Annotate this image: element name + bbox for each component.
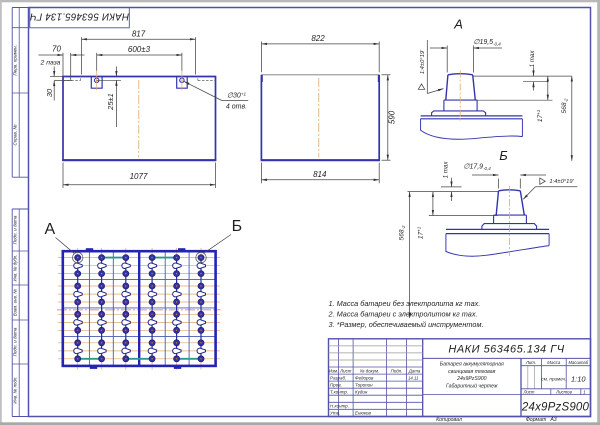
svg-text:1 max: 1 max — [529, 50, 536, 68]
svg-text:590: 590 — [388, 110, 397, 124]
svg-text:Подп. и дата: Подп. и дата — [13, 327, 18, 356]
svg-text:14.11: 14.11 — [408, 375, 419, 380]
svg-text:25±1: 25±1 — [106, 93, 115, 111]
svg-text:НАКИ 563465.134 ГЧ: НАКИ 563465.134 ГЧ — [30, 11, 129, 22]
svg-text:Перв. примен.: Перв. примен. — [13, 45, 18, 76]
svg-text:Т.контр.: Т.контр. — [330, 389, 348, 394]
svg-text:Федоров: Федоров — [355, 375, 374, 380]
svg-text:1:10: 1:10 — [571, 375, 586, 384]
svg-text:814: 814 — [313, 170, 327, 179]
svg-text:см. примеч.: см. примеч. — [541, 377, 566, 382]
svg-text:Батарея аккумуляторная: Батарея аккумуляторная — [440, 362, 504, 368]
svg-text:600±3: 600±3 — [128, 45, 151, 54]
svg-text:1. Масса батареи без электроли: 1. Масса батареи без электролита кг max. — [329, 299, 481, 308]
svg-text:Изм.: Изм. — [329, 368, 338, 373]
svg-text:24х9PzS900: 24х9PzS900 — [456, 376, 487, 382]
svg-text:Торопин: Торопин — [355, 382, 373, 387]
svg-text:Масштаб: Масштаб — [569, 360, 589, 365]
svg-text:1:4±0°19': 1:4±0°19' — [549, 179, 574, 185]
svg-text:Лит.: Лит. — [525, 360, 536, 365]
svg-text:А3: А3 — [549, 417, 556, 423]
svg-text:Кудин: Кудин — [355, 389, 368, 394]
svg-text:1077: 1077 — [130, 172, 148, 181]
svg-text:Инв. № дубл.: Инв. № дубл. — [13, 254, 18, 281]
svg-text:Подп.: Подп. — [391, 368, 403, 373]
svg-text:Разраб.: Разраб. — [330, 375, 346, 380]
svg-text:Масса: Масса — [547, 360, 561, 365]
svg-text:Габаритный чертеж: Габаритный чертеж — [446, 382, 498, 389]
svg-text:24х9PzS900: 24х9PzS900 — [521, 402, 590, 414]
svg-text:70: 70 — [52, 44, 61, 53]
svg-text:2. Масса батареи с электролито: 2. Масса батареи с электролитом кг max. — [328, 310, 478, 319]
svg-text:822: 822 — [311, 34, 325, 43]
svg-text:Пров.: Пров. — [330, 382, 342, 387]
svg-text:Енюков: Енюков — [355, 411, 371, 416]
svg-text:А: А — [44, 221, 55, 238]
svg-text:Формат: Формат — [526, 417, 547, 423]
svg-text:НАКИ 563465.134 ГЧ: НАКИ 563465.134 ГЧ — [448, 344, 564, 356]
svg-text:Дата: Дата — [408, 368, 421, 373]
svg-text:3. *Размер, обеспечиваемый инс: 3. *Размер, обеспечиваемый инструментом. — [329, 320, 484, 329]
svg-text:свинцовая тяговая: свинцовая тяговая — [448, 369, 495, 375]
svg-text:30: 30 — [45, 88, 54, 97]
svg-text:Инв. № подл.: Инв. № подл. — [13, 376, 18, 403]
svg-text:Н.контр.: Н.контр. — [330, 404, 349, 409]
svg-text:Листов: Листов — [555, 390, 572, 395]
svg-text:Копировал: Копировал — [436, 417, 462, 423]
svg-text:Справ. №: Справ. № — [13, 125, 18, 146]
svg-text:№ докум.: № докум. — [360, 368, 379, 373]
svg-text:Б: Б — [232, 218, 243, 235]
svg-text:Б: Б — [499, 148, 508, 163]
svg-text:1:4±0°19': 1:4±0°19' — [420, 49, 426, 74]
svg-text:4 отв.: 4 отв. — [226, 104, 247, 111]
svg-text:Утв.: Утв. — [330, 411, 340, 416]
svg-text:Лист: Лист — [339, 368, 352, 373]
svg-text:Подп. и дата: Подп. и дата — [13, 215, 18, 244]
svg-text:2 паза: 2 паза — [40, 60, 61, 67]
svg-text:817: 817 — [132, 30, 146, 39]
svg-text:1 max: 1 max — [443, 161, 450, 179]
svg-text:Лист: Лист — [522, 390, 534, 395]
svg-text:Взам. инв. №: Взам. инв. № — [13, 289, 18, 316]
svg-text:А: А — [453, 17, 463, 32]
